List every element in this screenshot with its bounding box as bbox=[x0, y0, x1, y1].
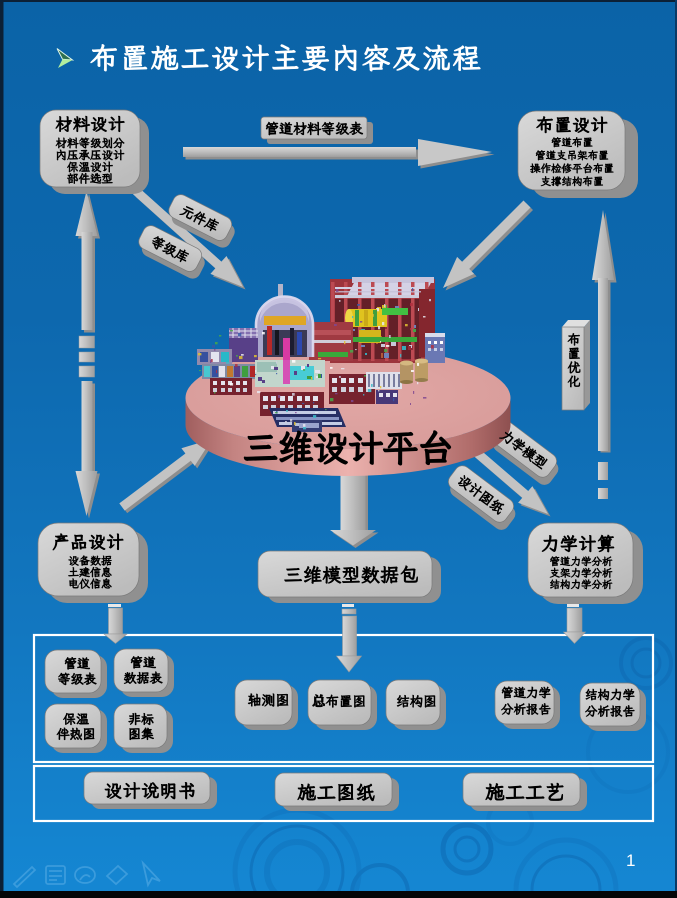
svg-text:1: 1 bbox=[626, 851, 635, 870]
